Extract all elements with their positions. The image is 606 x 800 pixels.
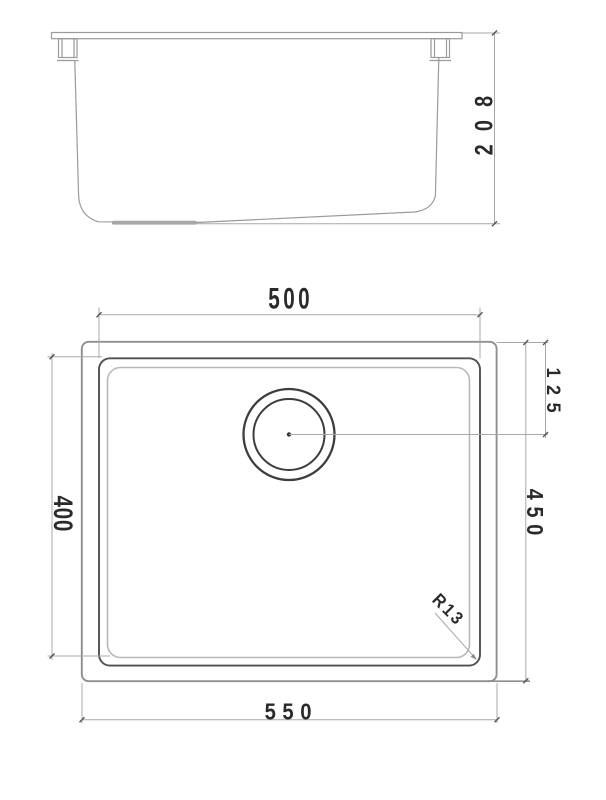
svg-text:208: 208 bbox=[469, 83, 498, 156]
svg-text:500: 500 bbox=[268, 283, 313, 316]
svg-text:400: 400 bbox=[47, 495, 77, 532]
svg-text:550: 550 bbox=[265, 698, 318, 725]
svg-text:125: 125 bbox=[543, 367, 565, 420]
svg-text:450: 450 bbox=[522, 489, 549, 542]
